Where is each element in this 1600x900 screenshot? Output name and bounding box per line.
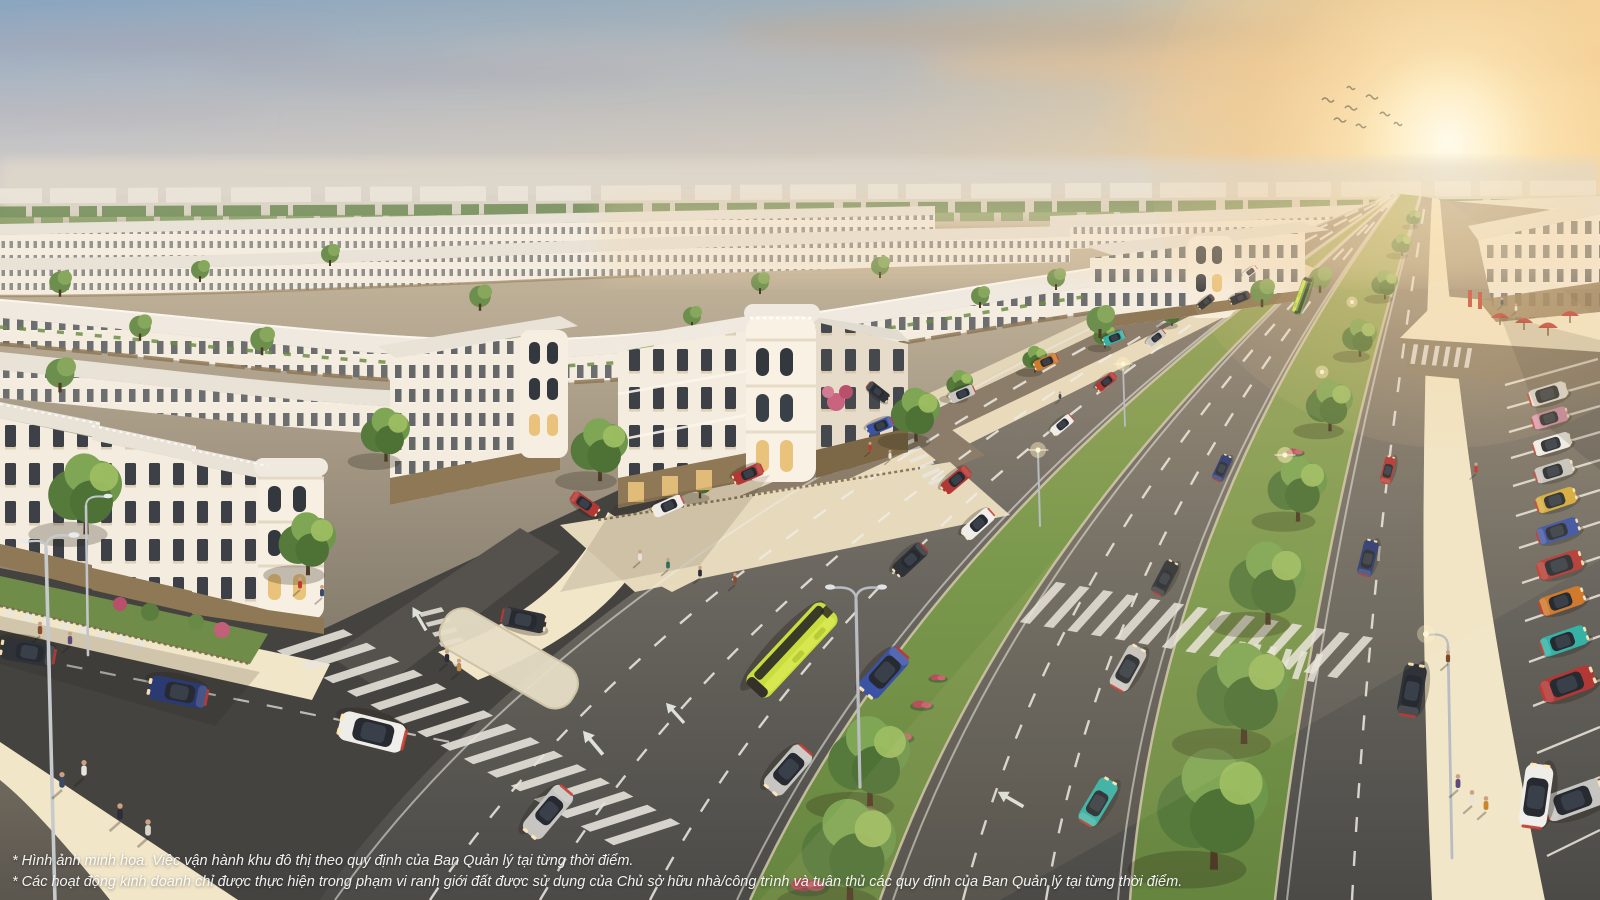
disclaimer-line-2: * Các hoạt động kinh doanh chỉ được thực… (12, 873, 1182, 891)
disclaimer: * Hình ảnh minh họa. Việc vận hành khu đ… (12, 852, 1182, 894)
scene-canvas (0, 0, 1600, 900)
urban-render-scene: * Hình ảnh minh họa. Việc vận hành khu đ… (0, 0, 1600, 900)
disclaimer-line-1: * Hình ảnh minh họa. Việc vận hành khu đ… (12, 852, 1182, 870)
